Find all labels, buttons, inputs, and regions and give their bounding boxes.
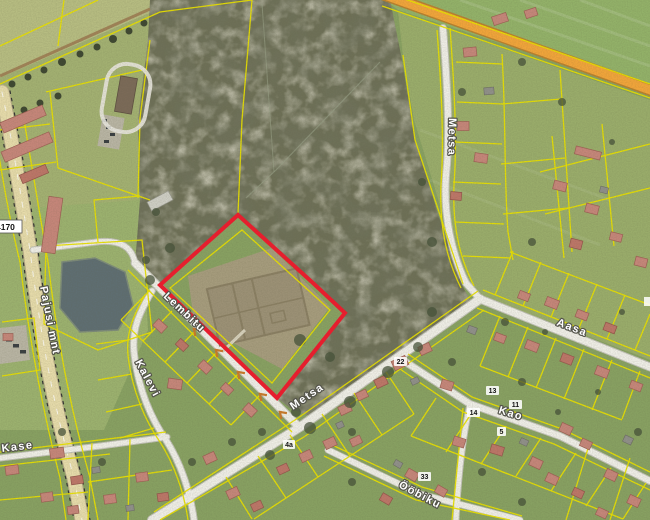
svg-text:14: 14 [470,410,478,417]
map-canvas[interactable]: Lembitu Metsa Metsa Aasa Kao Kalevi Paju… [0,0,650,520]
svg-text:13: 13 [489,388,497,395]
svg-text:4170: 4170 [0,222,15,232]
svg-text:11: 11 [512,402,520,409]
svg-text:22: 22 [397,359,405,366]
svg-text:33: 33 [421,474,429,481]
svg-text:4a: 4a [285,442,293,449]
aerial-texture [0,0,650,520]
road-number-badge: 4170 [0,220,22,233]
street-label-metsa-upper: Metsa [445,118,458,156]
svg-text:5: 5 [500,429,504,436]
